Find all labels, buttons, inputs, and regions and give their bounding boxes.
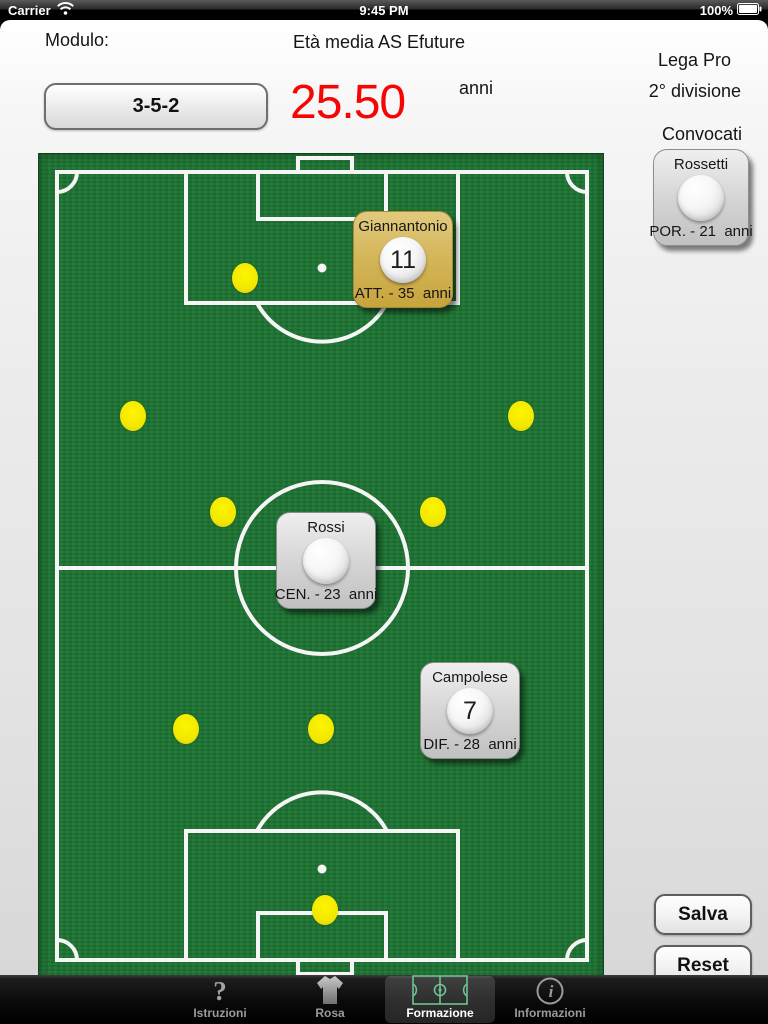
- main-panel: Modulo: 3-5-2 Età media AS Efuture 25.50…: [0, 20, 768, 975]
- status-bar: Carrier 9:45 PM 100%: [0, 0, 768, 20]
- player-dot[interactable]: [420, 497, 446, 527]
- player-card[interactable]: Campolese 7 DIF. - 28 anni: [420, 662, 520, 759]
- player-name: Rossetti: [674, 156, 728, 173]
- player-ball: 11: [380, 237, 426, 283]
- player-role-age: DIF. - 28 anni: [423, 736, 516, 753]
- player-ball: [678, 175, 724, 221]
- save-button[interactable]: Salva: [654, 894, 752, 935]
- shirt-icon: [312, 975, 348, 1005]
- player-dot[interactable]: [232, 263, 258, 293]
- league-name: Lega Pro: [561, 50, 741, 71]
- player-role-age: CEN. - 23 anni: [275, 586, 378, 603]
- player-dot[interactable]: [210, 497, 236, 527]
- modulo-label: Modulo:: [45, 30, 109, 51]
- age-unit-label: anni: [459, 78, 493, 99]
- player-card[interactable]: Giannantonio 11 ATT. - 35 anni: [353, 211, 453, 308]
- team-name: AS Efuture: [378, 32, 465, 53]
- player-dot[interactable]: [173, 714, 199, 744]
- formation-button[interactable]: 3-5-2: [44, 83, 268, 130]
- player-dot[interactable]: [308, 714, 334, 744]
- league-info: Lega Pro 2° divisione: [561, 50, 741, 102]
- division-name: 2° divisione: [561, 81, 741, 102]
- convocati-label: Convocati: [652, 124, 752, 145]
- player-number: 7: [463, 697, 477, 726]
- svg-text:i: i: [549, 982, 554, 1001]
- player-role-age: ATT. - 35 anni: [355, 285, 451, 302]
- player-name: Campolese: [432, 669, 508, 686]
- tab-istruzioni[interactable]: ? Istruzioni: [165, 976, 275, 1023]
- player-name: Rossi: [307, 519, 345, 536]
- pitch-icon: [412, 975, 468, 1005]
- tab-informazioni[interactable]: i Informazioni: [495, 976, 605, 1023]
- player-ball: [303, 538, 349, 584]
- player-number: 11: [390, 246, 416, 275]
- eta-media-label: Età media: [293, 32, 374, 53]
- tab-label: Informazioni: [514, 1006, 585, 1020]
- tab-rosa[interactable]: Rosa: [275, 976, 385, 1023]
- player-role-age: POR. - 21 anni: [649, 223, 752, 240]
- tab-formazione[interactable]: Formazione: [385, 976, 495, 1023]
- tab-label: Istruzioni: [193, 1006, 246, 1020]
- clock: 9:45 PM: [0, 3, 768, 18]
- player-card[interactable]: Rossi CEN. - 23 anni: [276, 512, 376, 609]
- player-ball: 7: [447, 688, 493, 734]
- question-icon: ?: [213, 976, 227, 1005]
- tab-bar: ? Istruzioni Rosa: [0, 975, 768, 1024]
- tab-label: Formazione: [406, 1006, 473, 1020]
- info-icon: i: [536, 976, 564, 1005]
- tab-label: Rosa: [315, 1006, 344, 1020]
- player-dot[interactable]: [120, 401, 146, 431]
- player-card[interactable]: Rossetti POR. - 21 anni: [653, 149, 749, 246]
- formation-screen: Carrier 9:45 PM 100% Modulo:: [0, 0, 768, 1024]
- battery-icon: [737, 3, 762, 18]
- average-age-value: 25.50: [290, 75, 405, 130]
- player-dot[interactable]: [312, 895, 338, 925]
- battery-percent: 100%: [700, 3, 733, 18]
- player-name: Giannantonio: [358, 218, 447, 235]
- player-dot[interactable]: [508, 401, 534, 431]
